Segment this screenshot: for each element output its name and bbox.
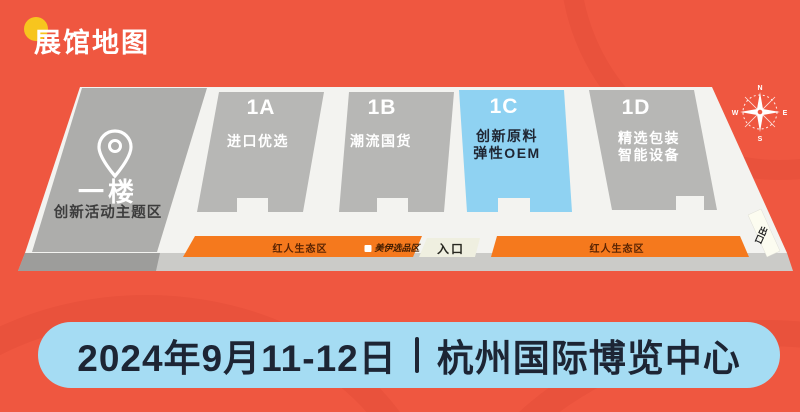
poster-canvas: 展馆地图 N S <box>0 0 800 412</box>
footer-info-bar: 2024年9月11-12日 杭州国际博览中心 <box>38 322 780 388</box>
compass-icon: N S W E <box>732 85 788 143</box>
booth-mini-logo-icon <box>364 245 371 252</box>
hall-1a-name: 进口优选 <box>227 131 289 151</box>
hall-1b-id: 1B <box>368 96 397 120</box>
footer-divider <box>415 337 419 373</box>
booth-label-text: 美伊选品区 <box>374 243 419 253</box>
hall-1b-name: 潮流国货 <box>350 131 412 151</box>
hall-1d-id: 1D <box>622 96 651 120</box>
hall-1c-name-line2: 弹性OEM <box>473 143 540 163</box>
zone-label: 创新活动主题区 <box>54 201 163 222</box>
hall-1a-id: 1A <box>247 96 276 120</box>
compass-n-label: N <box>757 85 762 92</box>
compass-e-label: E <box>783 110 788 117</box>
right-zone-strip-label: 红人生态区 <box>590 240 645 255</box>
event-venue: 杭州国际博览中心 <box>437 328 741 382</box>
compass-w-label: W <box>732 110 739 117</box>
floor-front-edge-dark <box>18 253 160 271</box>
compass-s-label: S <box>758 136 763 143</box>
booth-label: 美伊选品区 <box>364 241 419 254</box>
entrance-label: 入口 <box>437 240 465 257</box>
left-zone-strip-label: 红人生态区 <box>273 240 328 255</box>
hall-1d-name-line2: 智能设备 <box>618 145 680 165</box>
hall-1b-block <box>339 92 454 212</box>
hall-1c-id: 1C <box>490 95 519 119</box>
event-date: 2024年9月11-12日 <box>77 328 396 382</box>
